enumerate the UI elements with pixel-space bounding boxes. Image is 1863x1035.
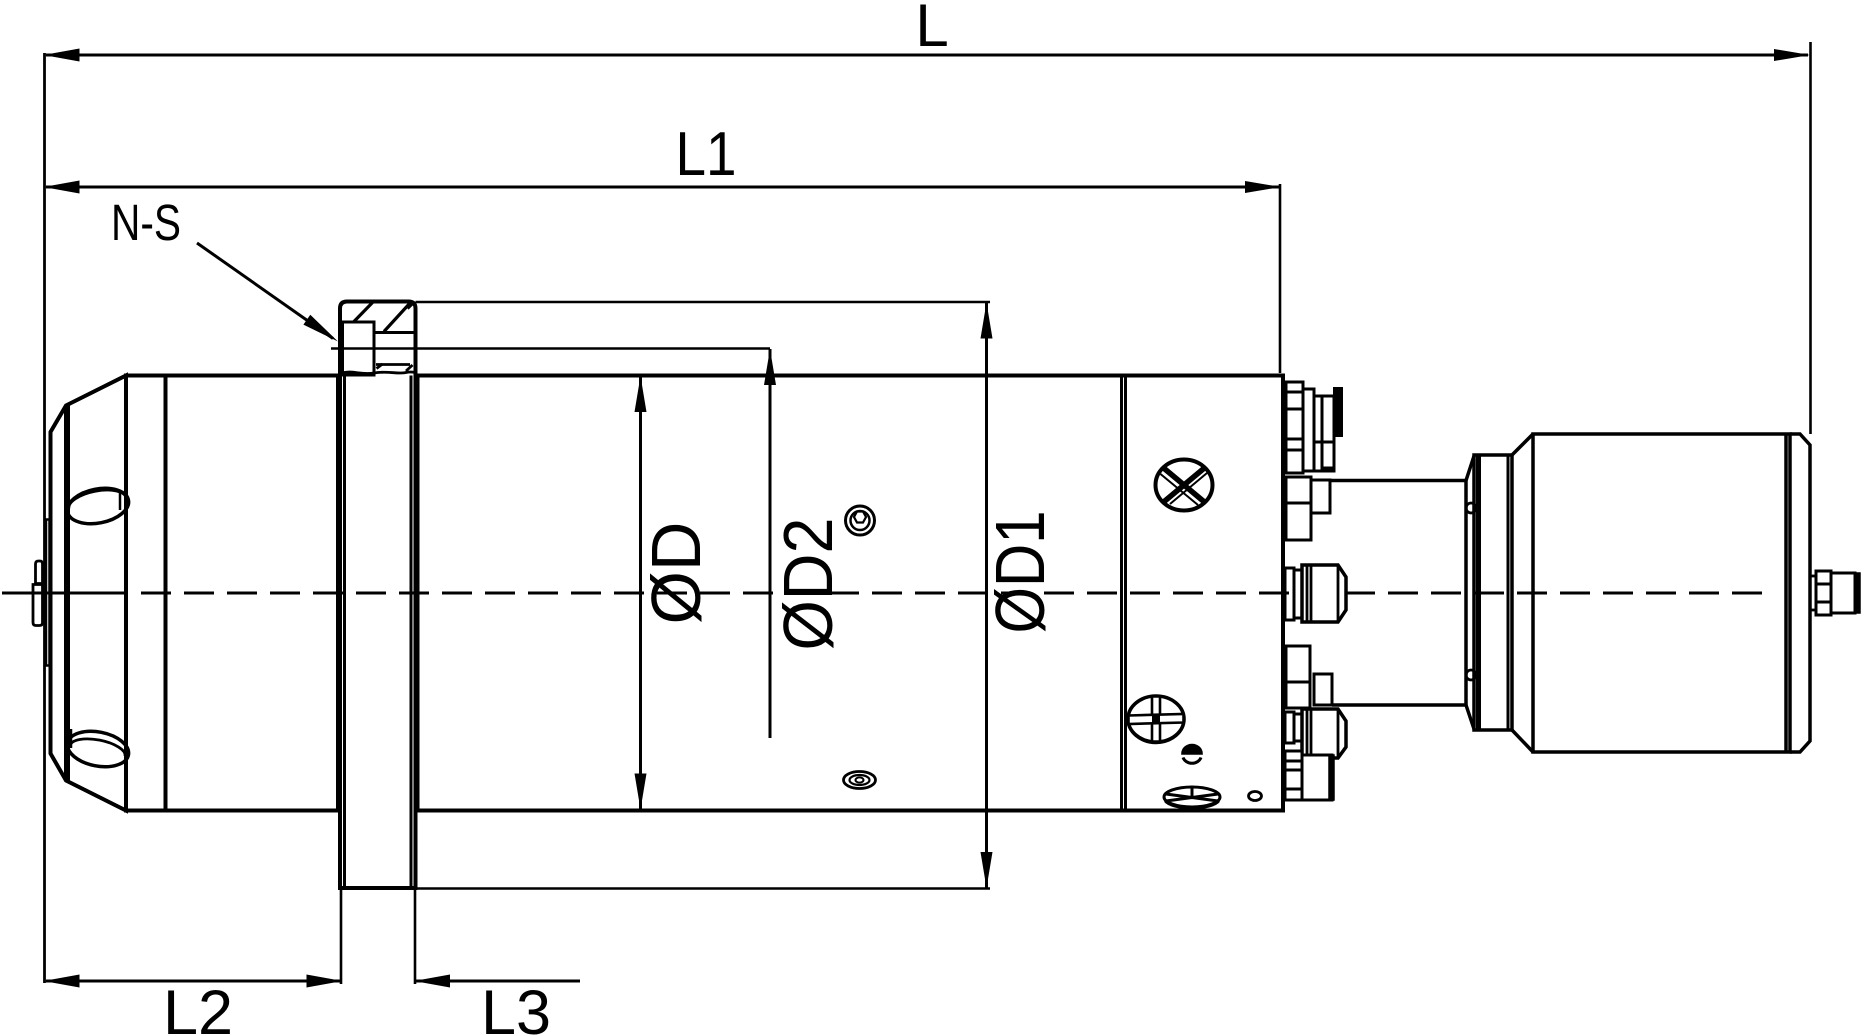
svg-text:ØD: ØD <box>637 522 715 625</box>
svg-text:L2: L2 <box>163 978 233 1035</box>
svg-text:L3: L3 <box>481 978 551 1035</box>
svg-text:ØD1: ØD1 <box>981 511 1059 634</box>
svg-text:ØD2: ØD2 <box>769 518 847 651</box>
svg-text:L: L <box>915 0 948 59</box>
svg-text:L1: L1 <box>676 120 737 189</box>
svg-text:N-S: N-S <box>111 194 181 251</box>
